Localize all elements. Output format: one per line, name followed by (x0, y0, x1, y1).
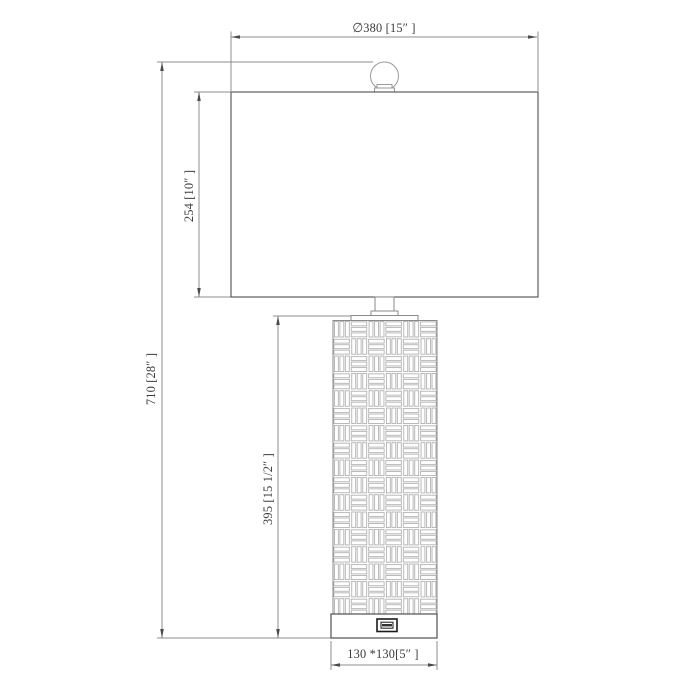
arrow-down-icon (276, 629, 280, 638)
arrow-left-icon (331, 663, 340, 667)
body-cap-plate (351, 316, 418, 321)
lamp-shade (231, 92, 538, 297)
arrow-up-icon (197, 92, 201, 101)
woven-body (333, 321, 437, 615)
body-height-dimension-label: 395 [15 1/2″ ] (260, 453, 276, 525)
neck-flange (371, 311, 398, 316)
lamp-outline (231, 62, 538, 638)
lamp-dimension-drawing: ∅380 [15″ ] 710 [28″ ] 254 [10″ ] 395 [1… (0, 0, 700, 700)
arrow-down-icon (197, 288, 201, 297)
shade-width-dimension-label: ∅380 [15″ ] (352, 20, 415, 36)
arrow-up-icon (160, 62, 164, 71)
arrow-left-icon (231, 35, 240, 39)
neck-stem (375, 297, 394, 311)
finial-collar-upper (377, 85, 392, 89)
arrow-down-icon (160, 629, 164, 638)
arrow-up-icon (276, 316, 280, 325)
shade-height-dimension-label: 254 [10″ ] (181, 170, 197, 222)
drawing-canvas (0, 0, 700, 700)
arrow-right-icon (428, 663, 437, 667)
total-height-dimension-label: 710 [28″ ] (143, 353, 159, 405)
finial-collar-lower (375, 88, 395, 92)
base-size-dimension-label: 130 *130[5″ ] (347, 646, 418, 662)
arrow-right-icon (528, 35, 537, 39)
usb-port-icon (377, 619, 397, 632)
